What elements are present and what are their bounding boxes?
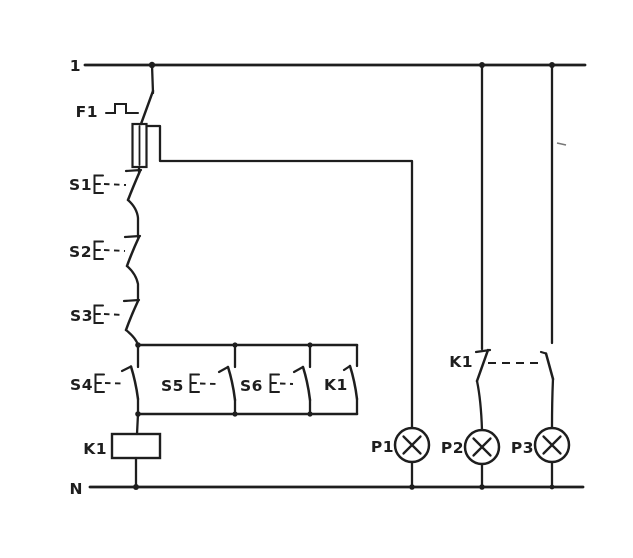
contact-s6: S6 xyxy=(240,345,310,414)
s3-label: S3 xyxy=(70,307,93,325)
schematic-canvas: 1 F1 S1 S2 S3 xyxy=(0,0,633,558)
contact-s4: S4 xyxy=(70,345,138,414)
contact-s3: S3 xyxy=(70,300,139,345)
contact-arm xyxy=(128,171,140,200)
f1-contact-arm xyxy=(141,91,153,124)
nc-contact-arm xyxy=(477,350,488,381)
contact-s2: S2 xyxy=(69,236,140,301)
k1-coil-label: K1 xyxy=(83,440,107,458)
contact-arm xyxy=(228,367,235,400)
contact-k1-aux: K1 xyxy=(324,345,357,414)
lamp-p2: P2 xyxy=(441,430,499,487)
p1-label: P1 xyxy=(371,438,394,456)
pushbutton-actuator-icon xyxy=(95,242,104,260)
top-bus: 1 xyxy=(70,57,585,75)
thermal-trip-icon xyxy=(106,104,138,113)
wire xyxy=(127,266,138,301)
contact-arm xyxy=(126,301,138,330)
actuator-link-dashes xyxy=(104,184,126,185)
wire xyxy=(477,381,482,430)
wire xyxy=(152,65,153,93)
p2-label: P2 xyxy=(441,439,464,457)
contact-s1: S1 xyxy=(69,167,141,237)
s4-label: S4 xyxy=(70,376,93,394)
f1-overload: F1 xyxy=(76,65,153,167)
wire xyxy=(126,330,138,345)
p3-label: P3 xyxy=(511,439,534,457)
actuator-link-dashes xyxy=(104,250,125,251)
ladder-diagram: 1 F1 S1 S2 S3 xyxy=(0,0,633,558)
top-bus-label: 1 xyxy=(70,57,81,75)
s5-label: S5 xyxy=(161,377,184,395)
wire xyxy=(552,379,553,428)
contact-hook xyxy=(122,367,131,372)
contact-arm xyxy=(131,367,138,400)
pushbutton-actuator-icon xyxy=(96,375,105,393)
pushbutton-actuator-icon xyxy=(95,176,104,194)
neutral-bus-label: N xyxy=(70,480,83,498)
contact-arm xyxy=(127,237,139,266)
pushbutton-actuator-icon xyxy=(271,375,280,393)
pushbutton-actuator-icon xyxy=(95,306,104,324)
s6-label: S6 xyxy=(240,377,263,395)
lamp-p3: P3 xyxy=(511,428,569,487)
k1-changeover: K1 xyxy=(449,65,553,430)
contact-arm xyxy=(303,367,310,400)
lamp-cross-icon xyxy=(404,437,421,454)
pushbutton-actuator-icon xyxy=(191,375,200,393)
coil-box xyxy=(112,434,160,458)
k1-changeover-label: K1 xyxy=(449,353,473,371)
lamp-cross-icon xyxy=(474,439,491,456)
wire xyxy=(137,414,138,434)
actuator-link-dashes xyxy=(104,314,124,315)
junction-dot xyxy=(133,484,139,490)
contact-s5: S5 xyxy=(161,345,235,414)
contact-hook xyxy=(294,367,303,372)
neutral-bus: N xyxy=(70,480,583,498)
k1-aux-label: K1 xyxy=(324,376,348,394)
no-contact-arm xyxy=(546,354,553,380)
junction-dot xyxy=(409,484,415,490)
wire xyxy=(128,200,138,237)
k1-coil: K1 xyxy=(83,414,160,487)
lamp-p1: P1 xyxy=(371,428,429,487)
contact-arm xyxy=(350,366,357,399)
actuator-link-dashes xyxy=(200,384,218,385)
lamp-cross-icon xyxy=(544,437,561,454)
s1-label: S1 xyxy=(69,176,92,194)
junction-dot xyxy=(550,485,555,490)
p1-feed-wire xyxy=(147,126,413,428)
junction-dot xyxy=(479,484,485,490)
contact-hook xyxy=(219,367,228,372)
s2-label: S2 xyxy=(69,243,92,261)
actuator-link-dashes xyxy=(105,383,121,384)
stray-mark xyxy=(557,143,566,145)
actuator-link-dashes xyxy=(280,384,293,385)
f1-label: F1 xyxy=(76,103,98,121)
